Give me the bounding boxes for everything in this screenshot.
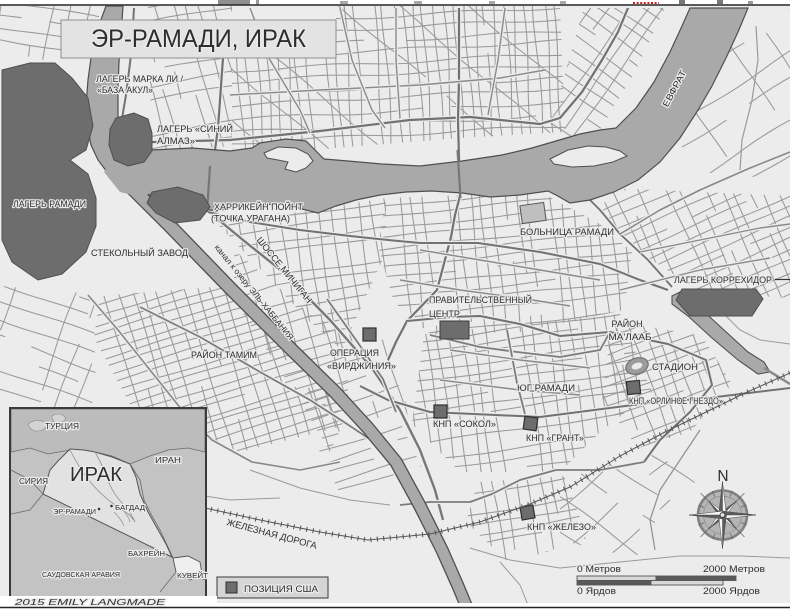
svg-text:ТУРЦИЯ: ТУРЦИЯ — [45, 422, 79, 431]
svg-text:ПОЗИЦИЯ США: ПОЗИЦИЯ США — [244, 584, 318, 594]
svg-text:ЛАГЕРЬ «СИНИЙ: ЛАГЕРЬ «СИНИЙ — [157, 123, 233, 134]
svg-text:ХАРРИКЕЙН ПОЙНТ: ХАРРИКЕЙН ПОЙНТ — [214, 201, 303, 212]
svg-text:АЛМАЗ»: АЛМАЗ» — [157, 136, 195, 146]
svg-text:ЦЕНТР: ЦЕНТР — [429, 309, 460, 319]
svg-text:РАЙОН ТАМИМ: РАЙОН ТАМИМ — [191, 349, 257, 360]
svg-text:СТАДИОН: СТАДИОН — [652, 362, 698, 372]
svg-text:0 Метров: 0 Метров — [577, 564, 621, 574]
svg-text:ЭР-РАМАДИ: ЭР-РАМАДИ — [53, 507, 96, 516]
svg-text:«БАЗА АКУЛ»: «БАЗА АКУЛ» — [97, 85, 153, 95]
svg-text:КНП «ЖЕЛЕЗО»: КНП «ЖЕЛЕЗО» — [527, 522, 596, 532]
svg-text:N: N — [717, 468, 728, 485]
svg-text:КУВЕЙТ: КУВЕЙТ — [177, 571, 209, 580]
svg-text:ЮГ РАМАДИ: ЮГ РАМАДИ — [517, 383, 575, 393]
svg-text:КНП «ОРЛИНОЕ ГНЕЗДО»: КНП «ОРЛИНОЕ ГНЕЗДО» — [629, 396, 723, 406]
svg-text:2015 EMILY LANGMADE: 2015 EMILY LANGMADE — [13, 598, 166, 607]
svg-text:(ТОЧКА УРАГАНА): (ТОЧКА УРАГАНА) — [211, 214, 290, 224]
svg-text:0 Ярдов: 0 Ярдов — [577, 586, 616, 596]
svg-text:ЛАГЕРЬ КОРРЕХИДОР: ЛАГЕРЬ КОРРЕХИДОР — [674, 275, 772, 285]
svg-text:2000 Ярдов: 2000 Ярдов — [703, 586, 760, 596]
svg-text:РАЙОН: РАЙОН — [612, 318, 643, 329]
svg-text:САУДОВСКАЯ АРАВИЯ: САУДОВСКАЯ АРАВИЯ — [42, 570, 120, 579]
svg-text:ЭР-РАМАДИ, ИРАК: ЭР-РАМАДИ, ИРАК — [91, 25, 306, 53]
svg-text:СИРИЯ: СИРИЯ — [19, 477, 48, 486]
svg-text:КНП «ГРАНТ»: КНП «ГРАНТ» — [526, 433, 584, 443]
svg-text:МА'ЛААБ: МА'ЛААБ — [609, 332, 652, 342]
svg-text:ЛАГЕРЬ РАМАДИ: ЛАГЕРЬ РАМАДИ — [13, 199, 86, 209]
svg-text:ИРАК: ИРАК — [70, 464, 122, 486]
svg-text:КНП «СОКОЛ»: КНП «СОКОЛ» — [433, 419, 496, 429]
svg-text:БАГДАД: БАГДАД — [115, 503, 145, 512]
svg-text:СТЕКОЛЬНЫЙ ЗАВОД: СТЕКОЛЬНЫЙ ЗАВОД — [91, 247, 189, 258]
svg-text:«ВИРДЖИНИЯ»: «ВИРДЖИНИЯ» — [327, 361, 396, 371]
svg-text:БАХРЕЙН: БАХРЕЙН — [128, 549, 165, 558]
svg-text:ОПЕРАЦИЯ: ОПЕРАЦИЯ — [330, 348, 379, 358]
svg-text:ПРАВИТЕЛЬСТВЕННЫЙ: ПРАВИТЕЛЬСТВЕННЫЙ — [429, 294, 532, 305]
svg-text:БОЛЬНИЦА РАМАДИ: БОЛЬНИЦА РАМАДИ — [520, 227, 614, 237]
svg-text:2000 Метров: 2000 Метров — [703, 564, 765, 574]
svg-text:ЛАГЕРЬ МАРКА ЛИ /: ЛАГЕРЬ МАРКА ЛИ / — [96, 74, 183, 84]
svg-text:ИРАН: ИРАН — [155, 456, 181, 465]
